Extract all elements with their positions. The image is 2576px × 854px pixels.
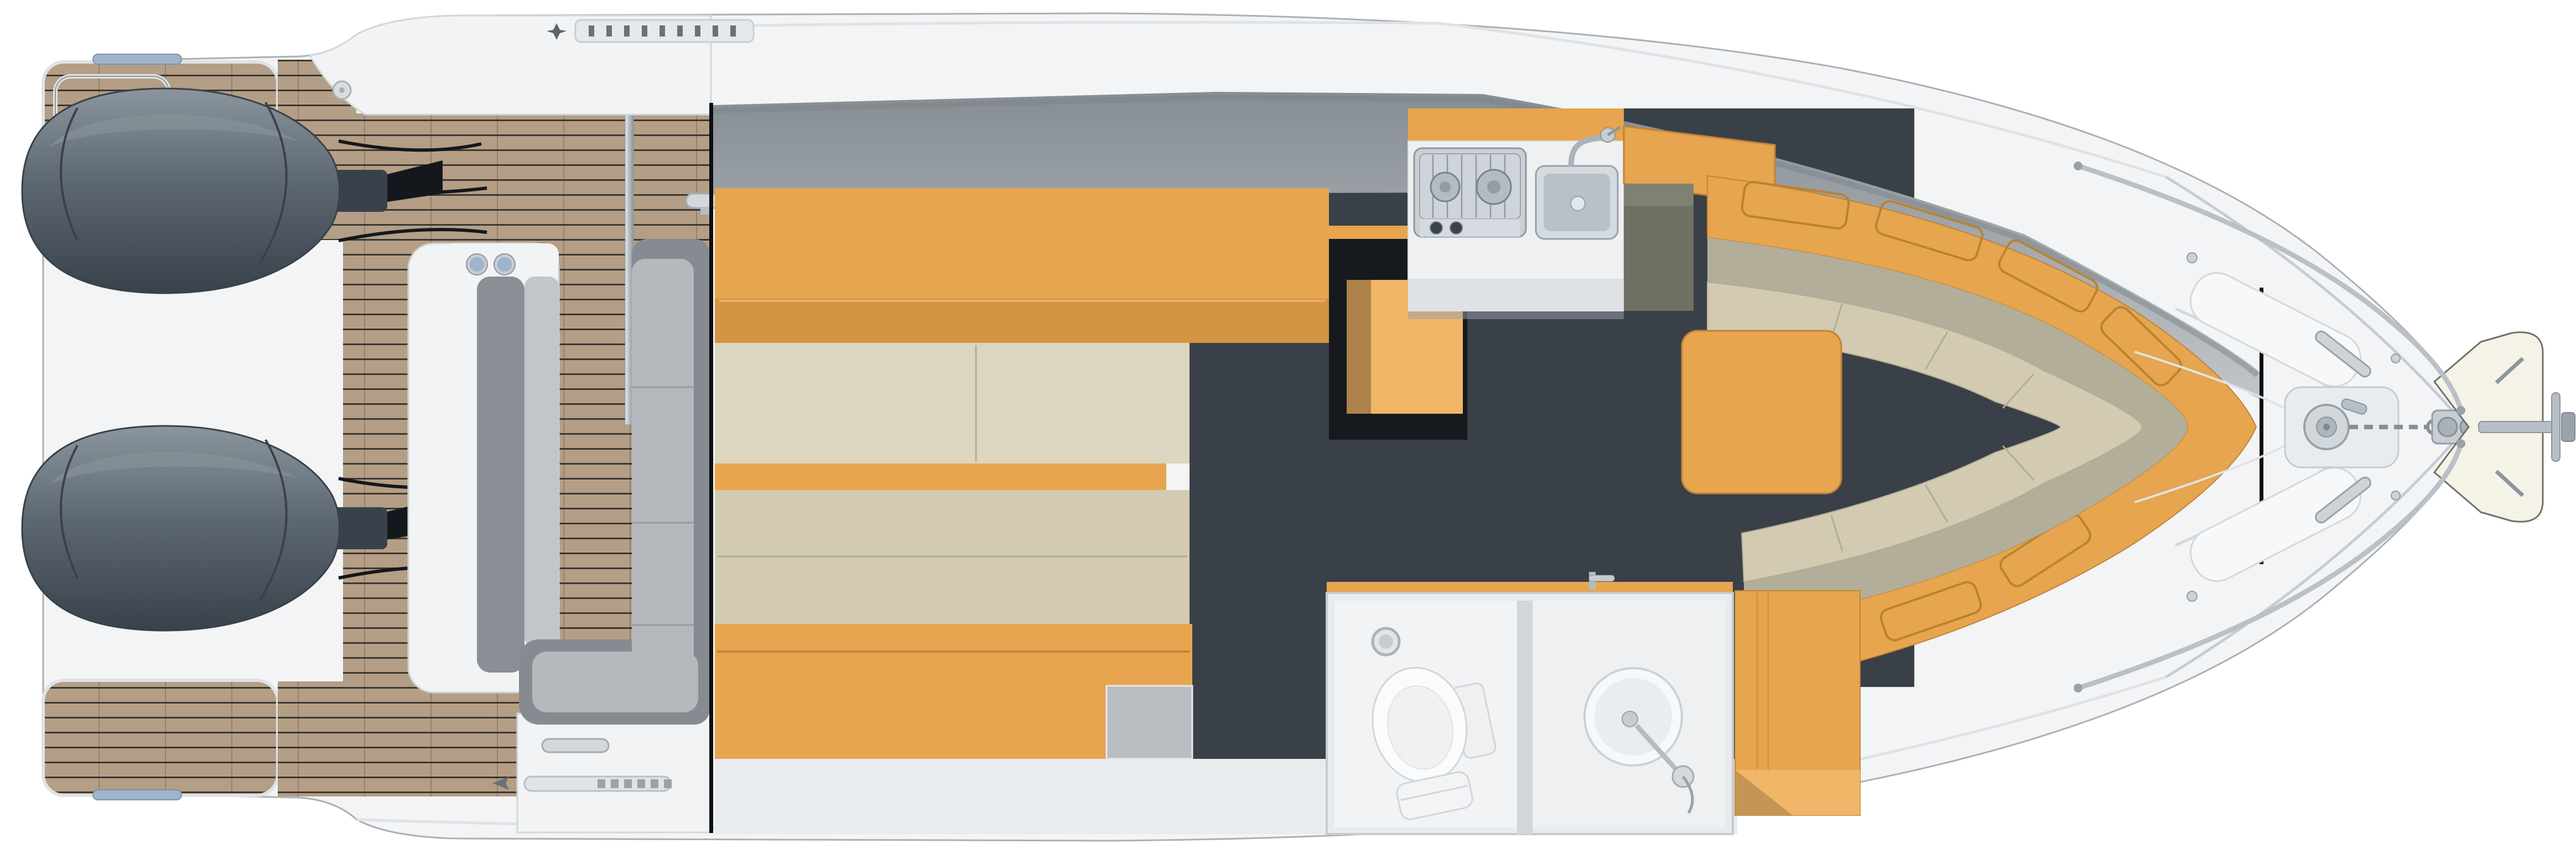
corridor-floor-aft xyxy=(1190,595,1327,761)
galley-apron xyxy=(1408,279,1624,311)
gunwale-bottom xyxy=(517,714,711,832)
stove xyxy=(1414,148,1526,237)
platform-lower-teak xyxy=(43,680,278,795)
galley-upper-strip xyxy=(1408,108,1624,141)
head-faucet-arm xyxy=(1589,575,1614,581)
cleat-port xyxy=(542,739,609,752)
section-cut-line-aft xyxy=(709,103,713,833)
burner-small-cap xyxy=(1440,181,1451,192)
anchor-shank xyxy=(2479,421,2555,433)
bench-cushion-aft xyxy=(532,652,698,712)
rail-end-3 xyxy=(2074,684,2082,692)
fridge-top xyxy=(1624,184,1694,206)
anchor-crossbar xyxy=(2552,393,2560,461)
wardrobe xyxy=(1735,591,1860,815)
berth-pillow-zone xyxy=(715,343,1190,464)
transom-panel-dark xyxy=(477,277,524,673)
head-bathroom: Head compartment with toilet, washbasin,… xyxy=(1327,572,1860,834)
berth-shelf-bar xyxy=(719,464,1166,490)
boat-floorplan: Motor yacht floor plan — top view with i… xyxy=(0,0,2576,854)
porthole-glass xyxy=(1379,634,1393,649)
roof-vent-ticks xyxy=(589,25,736,37)
head-divider xyxy=(1517,601,1533,834)
cleat-starboard-leg-1 xyxy=(700,207,710,215)
burner-large-cap xyxy=(1487,180,1500,194)
stove-knob-1 xyxy=(1430,222,1442,234)
hanging-locker-shadow xyxy=(1347,280,1371,414)
transom-fitting-right-inner xyxy=(497,257,512,272)
galley-shadow xyxy=(1408,311,1624,319)
sink-drain xyxy=(1571,196,1585,211)
transom-panel-light xyxy=(524,277,559,647)
rail-end-1 xyxy=(2074,162,2082,170)
boat-plan-svg: Motor yacht floor plan — top view with i… xyxy=(0,0,2576,854)
roller-wheel-1 xyxy=(2438,418,2457,436)
transom-fitting-left-inner xyxy=(470,257,484,272)
berth-step-notch xyxy=(1107,686,1192,759)
stove-knob-2 xyxy=(1450,222,1462,234)
windlass-hub xyxy=(2323,424,2330,430)
grab-rail-bottom xyxy=(93,790,181,800)
deck-filler-dot xyxy=(339,87,345,93)
cockpit-teak-lower-link xyxy=(278,681,517,796)
upper-cabinet-face xyxy=(715,299,1329,343)
basin-drain xyxy=(1622,711,1638,727)
grab-rail-top xyxy=(93,54,181,64)
anchor-end-block xyxy=(2562,413,2575,441)
gunwale-bottom-band: Port side deck with boarding ladder stri… xyxy=(492,714,711,832)
dinette-table xyxy=(1682,331,1841,493)
rail-end-2 xyxy=(2456,406,2465,415)
rail-end-4 xyxy=(2456,439,2465,448)
